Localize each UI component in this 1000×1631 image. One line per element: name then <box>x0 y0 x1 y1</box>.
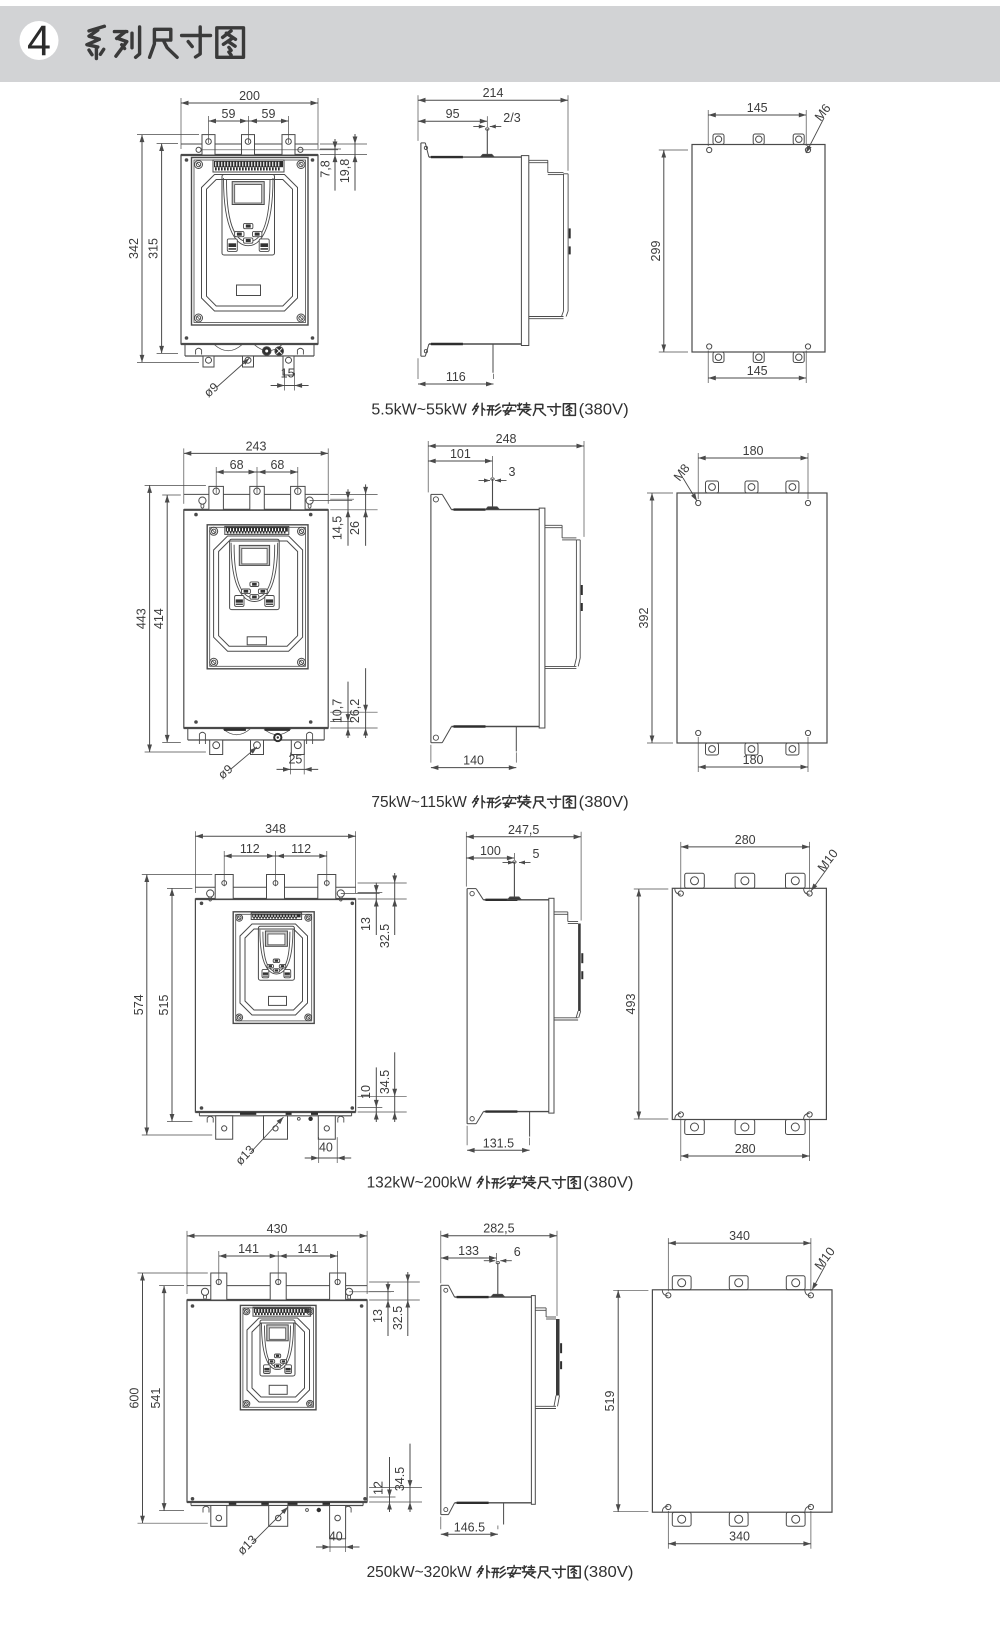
svg-text:132kW~200kW: 132kW~200kW <box>367 1175 473 1192</box>
svg-text:250kW~320kW: 250kW~320kW <box>367 1564 473 1581</box>
svg-text:12: 12 <box>372 1481 386 1495</box>
svg-text:32.5: 32.5 <box>378 924 392 948</box>
svg-text:200: 200 <box>239 89 260 103</box>
svg-text:5.5kW~55kW: 5.5kW~55kW <box>371 402 467 419</box>
svg-text:392: 392 <box>637 608 651 629</box>
svg-text:443: 443 <box>135 608 149 629</box>
svg-text:32.5: 32.5 <box>391 1306 405 1330</box>
svg-text:4: 4 <box>27 17 51 65</box>
svg-text:519: 519 <box>603 1391 617 1412</box>
svg-text:10: 10 <box>359 1085 373 1099</box>
svg-text:13: 13 <box>371 1309 385 1323</box>
svg-text:214: 214 <box>483 86 504 100</box>
svg-text:280: 280 <box>735 833 756 847</box>
svg-text:112: 112 <box>240 842 260 856</box>
svg-text:68: 68 <box>230 458 244 472</box>
svg-text:6: 6 <box>514 1245 521 1259</box>
svg-text:342: 342 <box>127 238 141 259</box>
svg-text:180: 180 <box>743 444 764 458</box>
svg-text:(380V): (380V) <box>583 1564 633 1581</box>
svg-text:5: 5 <box>533 847 540 861</box>
svg-text:19,8: 19,8 <box>338 159 352 183</box>
svg-text:133: 133 <box>458 1244 479 1258</box>
svg-text:7,8: 7,8 <box>319 160 333 177</box>
svg-text:59: 59 <box>262 107 276 121</box>
svg-text:140: 140 <box>463 754 484 768</box>
svg-text:280: 280 <box>735 1142 756 1156</box>
svg-text:145: 145 <box>747 101 768 115</box>
svg-text:340: 340 <box>729 1530 750 1544</box>
svg-text:15: 15 <box>281 367 295 381</box>
svg-text:3: 3 <box>509 465 516 479</box>
svg-text:248: 248 <box>496 432 517 446</box>
svg-text:26,2: 26,2 <box>348 699 362 723</box>
svg-text:59: 59 <box>222 107 236 121</box>
svg-text:247,5: 247,5 <box>508 823 539 837</box>
svg-text:(380V): (380V) <box>579 794 629 811</box>
svg-text:180: 180 <box>743 753 764 767</box>
svg-text:541: 541 <box>149 1388 163 1409</box>
svg-text:515: 515 <box>157 995 171 1016</box>
svg-text:(380V): (380V) <box>579 402 629 419</box>
svg-text:315: 315 <box>147 238 161 259</box>
svg-text:14,5: 14,5 <box>331 516 345 540</box>
svg-text:282,5: 282,5 <box>483 1222 514 1236</box>
svg-text:(380V): (380V) <box>583 1175 633 1192</box>
svg-text:95: 95 <box>446 107 460 121</box>
svg-text:340: 340 <box>729 1229 750 1243</box>
svg-text:116: 116 <box>446 370 466 384</box>
svg-text:145: 145 <box>747 364 768 378</box>
svg-text:25: 25 <box>288 753 302 767</box>
svg-text:75kW~115kW: 75kW~115kW <box>371 794 467 811</box>
svg-text:348: 348 <box>265 822 286 836</box>
svg-text:68: 68 <box>270 458 284 472</box>
svg-text:141: 141 <box>238 1242 259 1256</box>
svg-text:600: 600 <box>128 1388 142 1409</box>
svg-text:414: 414 <box>152 608 166 629</box>
svg-text:101: 101 <box>450 447 471 461</box>
svg-text:146.5: 146.5 <box>454 1520 485 1534</box>
svg-text:141: 141 <box>297 1242 318 1256</box>
svg-text:493: 493 <box>624 994 638 1015</box>
svg-text:34.5: 34.5 <box>393 1467 407 1491</box>
svg-text:40: 40 <box>319 1141 333 1155</box>
svg-text:100: 100 <box>480 844 501 858</box>
svg-text:299: 299 <box>649 241 663 262</box>
svg-text:13: 13 <box>359 917 373 931</box>
svg-text:10,7: 10,7 <box>331 699 345 723</box>
svg-text:34.5: 34.5 <box>378 1070 392 1094</box>
svg-text:574: 574 <box>132 994 146 1015</box>
svg-text:131.5: 131.5 <box>483 1136 514 1150</box>
svg-text:2/3: 2/3 <box>503 111 520 125</box>
svg-text:26: 26 <box>348 521 362 535</box>
svg-text:430: 430 <box>267 1222 288 1236</box>
svg-text:243: 243 <box>246 439 267 453</box>
svg-text:112: 112 <box>291 842 311 856</box>
svg-text:40: 40 <box>329 1530 343 1544</box>
